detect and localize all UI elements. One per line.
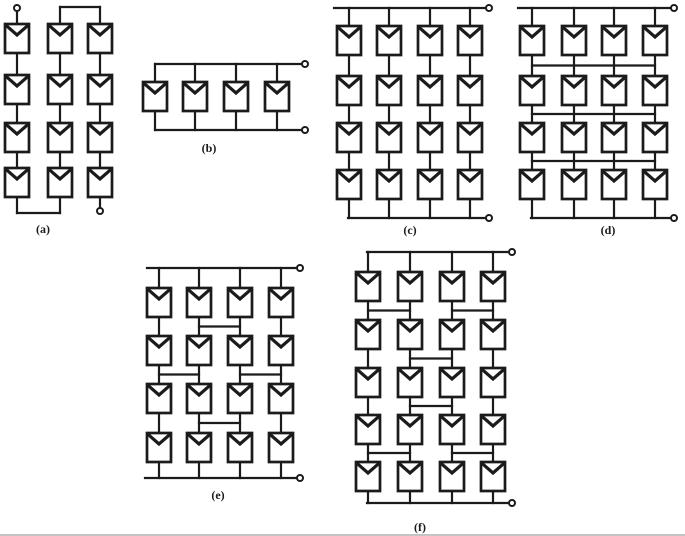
terminal-node [509,249,515,255]
pv-module-icon [88,123,112,152]
pv-module-icon [228,433,252,462]
pv-module-icon [5,24,29,53]
pv-module-icon [337,26,361,55]
diagram-b-label: (b) [202,141,217,155]
pv-module-icon [48,123,72,152]
pv-module-icon [458,170,482,199]
pv-module-icon [269,384,293,413]
terminal-node [509,500,515,506]
pv-module-icon [602,123,626,152]
pv-module-icon [147,433,171,462]
pv-module-icon [337,170,361,199]
pv-module-icon [481,415,505,444]
pv-module-icon [418,76,442,105]
diagram-b-parallel: (b) [143,61,308,155]
pv-module-icon [520,76,544,105]
pv-module-icon [187,288,211,317]
terminal-node [486,5,492,11]
terminal-node [486,215,492,221]
pv-module-icon [562,170,586,199]
pv-module-icon [224,82,248,111]
pv-module-icon [418,123,442,152]
pv-module-icon [643,76,667,105]
terminal-node [14,5,20,11]
diagram-c-series-parallel: (c) [334,5,492,237]
pv-module-icon [643,123,667,152]
pv-module-icon [418,26,442,55]
pv-module-icon [562,76,586,105]
terminal-node [297,265,303,271]
pv-module-icon [183,82,207,111]
pv-module-icon [265,82,289,111]
pv-module-icon [377,76,401,105]
pv-module-icon [440,368,464,397]
pv-module-icon [398,462,422,491]
diagram-d-total-cross-tied: (d) [518,5,677,237]
pv-module-icon [440,415,464,444]
pv-module-icon [562,123,586,152]
pv-module-icon [481,462,505,491]
pv-module-icon [602,170,626,199]
pv-module-icon [458,76,482,105]
pv-module-icon [562,26,586,55]
diagram-d-label: (d) [601,223,616,237]
terminal-node [671,215,677,221]
terminal-node [97,208,103,214]
pv-module-icon [602,76,626,105]
pv-module-icon [458,123,482,152]
pv-module-icon [88,24,112,53]
pv-module-icon [337,76,361,105]
pv-module-icon [602,26,626,55]
diagram-c-label: (c) [403,223,416,237]
pv-module-icon [147,288,171,317]
pv-module-icon [356,368,380,397]
pv-module-icon [440,272,464,301]
diagram-canvas: (a)(b)(c)(d)(e)(f) [0,0,685,536]
diagram-e-bridge-linked: (e) [145,265,303,502]
terminal-node [302,127,308,133]
pv-module-icon [48,75,72,104]
diagram-a-label: (a) [36,222,50,236]
pv-module-icon [418,170,442,199]
pv-module-icon [5,123,29,152]
pv-module-icon [398,272,422,301]
pv-module-icon [481,368,505,397]
pv-module-icon [398,368,422,397]
pv-module-icon [228,288,252,317]
pv-module-icon [440,320,464,349]
pv-module-icon [643,26,667,55]
pv-module-icon [269,288,293,317]
pv-module-icon [520,26,544,55]
pv-module-icon [88,168,112,197]
pv-module-icon [337,123,361,152]
diagram-f-honeycomb: (f) [356,249,515,534]
pv-module-icon [520,170,544,199]
pv-module-icon [458,26,482,55]
pv-module-icon [187,336,211,365]
pv-module-icon [356,415,380,444]
terminal-node [297,475,303,481]
pv-module-icon [481,272,505,301]
pv-module-icon [356,320,380,349]
pv-module-icon [481,320,505,349]
pv-module-icon [187,433,211,462]
diagram-e-label: (e) [211,488,224,502]
pv-module-icon [377,170,401,199]
pv-module-icon [147,384,171,413]
terminal-node [671,5,677,11]
pv-module-icon [520,123,544,152]
pv-module-icon [143,82,167,111]
pv-module-icon [5,75,29,104]
pv-module-icon [48,168,72,197]
diagram-a-series-serpentine-string: (a) [5,5,112,236]
terminal-node [302,61,308,67]
pv-module-icon [228,384,252,413]
pv-module-icon [5,168,29,197]
pv-module-icon [356,462,380,491]
pv-module-icon [88,75,112,104]
pv-module-icon [398,415,422,444]
pv-module-icon [228,336,252,365]
pv-module-icon [440,462,464,491]
pv-module-icon [377,26,401,55]
pv-module-icon [147,336,171,365]
pv-module-icon [48,24,72,53]
pv-module-icon [187,384,211,413]
pv-module-icon [269,336,293,365]
pv-module-icon [398,320,422,349]
pv-module-icon [269,433,293,462]
diagram-f-label: (f) [414,520,426,534]
pv-module-icon [643,170,667,199]
pv-module-icon [356,272,380,301]
pv-array-configurations-figure: (a)(b)(c)(d)(e)(f) [0,0,685,536]
pv-module-icon [377,123,401,152]
